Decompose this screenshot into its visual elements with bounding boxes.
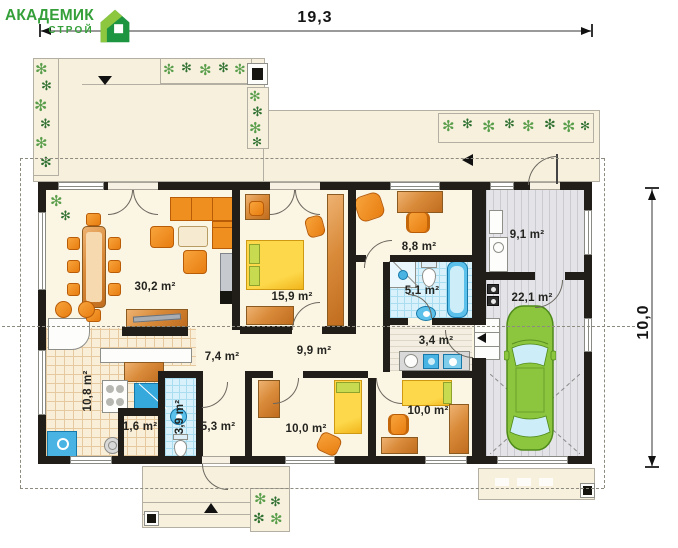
garage-door — [497, 456, 568, 464]
plant-icon: ✻ — [218, 62, 229, 75]
wall — [320, 182, 390, 190]
wall — [383, 262, 390, 372]
wardrobe — [449, 404, 469, 454]
wall — [584, 182, 592, 210]
plant-icon: ✻ — [181, 62, 192, 75]
wall — [303, 371, 368, 378]
room-label-garage: 22,1 m² — [511, 292, 552, 304]
dryer — [443, 354, 462, 369]
washing-machine — [47, 431, 77, 457]
wall — [348, 190, 356, 334]
dining-chair — [67, 283, 80, 296]
logo-text: АКАДЕМИК СТРОЙ — [5, 7, 94, 36]
dimension-tick — [645, 187, 659, 189]
room-label-hallway: 7,4 m² — [205, 351, 239, 363]
driveway-paver — [539, 478, 553, 486]
dining-chair — [67, 237, 80, 250]
step-arrow-icon — [477, 333, 486, 343]
plant-icon: ✻ — [40, 118, 51, 131]
roof-overhang-dashline — [20, 158, 604, 159]
wall — [245, 371, 273, 378]
wall — [158, 378, 165, 456]
wall — [584, 255, 592, 318]
floor-plan-canvas: АКАДЕМИК СТРОЙ 19,3 10,0 ✻ ✻ ✻ ✻ ✻ ✻ ✻ ✻… — [0, 0, 678, 548]
arrow-up-icon — [648, 190, 656, 200]
plant-icon: ✻ — [253, 512, 265, 526]
dining-table — [82, 226, 106, 308]
dining-chair — [86, 213, 101, 226]
dining-chair — [108, 237, 121, 250]
plant-icon: ✻ — [252, 106, 263, 119]
plant-icon: ✻ — [249, 90, 261, 104]
dining-chair — [108, 260, 121, 273]
electrical-panel — [487, 284, 499, 294]
wall — [584, 352, 592, 464]
logo-title: АКАДЕМИК — [5, 7, 94, 25]
plant-icon: ✻ — [462, 118, 473, 131]
office-chair — [388, 414, 409, 435]
wall — [38, 290, 46, 350]
porch-door-opening — [202, 456, 230, 464]
wall — [118, 408, 163, 416]
pillow — [249, 266, 260, 286]
section-dashline — [2, 326, 640, 327]
wall — [440, 182, 490, 190]
wall — [38, 456, 70, 464]
wall — [232, 190, 240, 330]
plant-icon: ✻ — [60, 210, 71, 223]
room-label-living-room: 30,2 m² — [134, 281, 175, 293]
plant-icon: ✻ — [580, 120, 590, 132]
pillow — [336, 382, 360, 393]
wall — [335, 456, 425, 464]
logo-house-icon — [97, 7, 133, 45]
pillow — [443, 382, 452, 404]
bar-counter — [48, 318, 90, 350]
boiler — [489, 237, 508, 272]
plant-icon: ✻ — [163, 63, 175, 77]
room-label-bedroom-right: 10,0 m² — [407, 405, 448, 417]
wall — [245, 378, 252, 456]
plant-icon: ✻ — [50, 194, 63, 209]
electrical-panel — [487, 296, 499, 306]
dining-chair — [108, 283, 121, 296]
plant-icon: ✻ — [270, 512, 283, 527]
office-chair — [406, 212, 430, 233]
armchair — [150, 226, 174, 248]
plant-icon: ✻ — [35, 62, 48, 77]
room-label-wc: 3,9 m² — [174, 400, 186, 434]
driveway-paver — [495, 478, 509, 486]
room-label-pantry: 1,6 m² — [123, 421, 157, 433]
plant-icon: ✻ — [504, 118, 515, 131]
coffee-table — [178, 226, 208, 247]
plant-icon: ✻ — [522, 119, 535, 134]
room-label-bathroom: 5,1 m² — [405, 285, 439, 297]
company-logo: АКАДЕМИК СТРОЙ — [5, 7, 133, 45]
wall — [565, 272, 584, 280]
dimension-height-label: 10,0 — [635, 304, 653, 339]
plant-icon: ✻ — [252, 136, 262, 148]
driveway-paver — [517, 478, 531, 486]
plant-icon: ✻ — [562, 119, 575, 135]
terrace-door-opening — [108, 182, 158, 190]
room-label-bedroom-left: 10,0 m² — [285, 423, 326, 435]
shower — [389, 261, 416, 288]
toilet-tank — [421, 261, 437, 268]
kitchen-counter — [100, 348, 192, 363]
laundry-sink — [404, 354, 418, 368]
wall — [230, 456, 285, 464]
wall-cabinet — [489, 210, 503, 234]
plant-icon: ✻ — [270, 496, 281, 509]
room-label-entry-hall: 5,3 m² — [201, 421, 235, 433]
desk — [381, 437, 418, 454]
roof-overhang-dashline — [20, 488, 604, 489]
wardrobe — [246, 306, 294, 325]
wall — [390, 318, 408, 325]
wall — [122, 327, 188, 336]
wall — [158, 371, 203, 378]
wall — [472, 190, 486, 325]
wall — [390, 255, 472, 262]
dimension-tick — [645, 466, 659, 468]
entry-arrow-icon — [204, 503, 218, 513]
room-label-corridor: 9,9 m² — [297, 345, 331, 357]
porch-step-line — [142, 502, 252, 503]
wall — [486, 272, 535, 280]
sideboard — [126, 309, 188, 327]
wall — [402, 371, 472, 378]
wall — [112, 456, 202, 464]
armchair — [183, 250, 207, 274]
logo-subtitle: СТРОЙ — [5, 25, 94, 36]
plant-icon: ✻ — [254, 492, 267, 507]
window — [70, 456, 112, 464]
plant-icon: ✻ — [249, 121, 262, 136]
window — [584, 318, 592, 352]
window — [38, 212, 46, 290]
plant-icon: ✻ — [482, 119, 495, 135]
arrow-right-icon — [581, 27, 591, 35]
window — [38, 350, 46, 415]
bar-stool — [55, 301, 72, 318]
dining-chair — [67, 260, 80, 273]
desk-chair — [249, 201, 264, 216]
arrow-down-icon — [648, 456, 656, 466]
wall — [158, 182, 270, 190]
room-label-bedroom-master: 15,9 m² — [271, 291, 312, 303]
plant-icon: ✻ — [41, 80, 52, 93]
room-label-mudroom: 3,4 m² — [419, 335, 453, 347]
window — [425, 456, 467, 464]
bathtub — [447, 261, 468, 318]
entry-arrow-icon — [98, 76, 112, 85]
room-label-kitchen: 10,8 m² — [82, 370, 94, 411]
dimension-width-label: 19,3 — [297, 9, 332, 27]
plant-icon: ✻ — [544, 118, 556, 132]
window — [58, 182, 104, 190]
wall — [240, 326, 292, 334]
porch-column-core — [147, 514, 156, 523]
window — [584, 210, 592, 255]
plant-icon: ✻ — [442, 119, 455, 134]
wall — [322, 326, 348, 334]
wall — [432, 318, 472, 325]
window — [390, 182, 440, 190]
entry-arrow-icon — [462, 154, 473, 166]
corner-sofa — [170, 197, 236, 221]
plant-icon: ✻ — [35, 136, 48, 151]
plant-icon: ✻ — [234, 63, 246, 77]
window — [490, 182, 514, 190]
wall — [38, 182, 46, 212]
bar-stool — [78, 301, 95, 318]
wall — [472, 358, 486, 456]
wardrobe — [327, 194, 344, 326]
dimension-tick — [591, 24, 593, 37]
terrace-door-opening — [270, 182, 320, 190]
plant-icon: ✻ — [34, 98, 47, 114]
wall — [568, 456, 592, 464]
room-label-study: 8,8 m² — [402, 241, 436, 253]
terrace-column-core — [252, 68, 263, 80]
washing-machine — [423, 354, 439, 369]
window — [285, 456, 335, 464]
roof-overhang-dashline — [604, 158, 605, 488]
pillow — [249, 244, 260, 264]
plant-icon: ✻ — [199, 63, 212, 78]
room-label-boiler-room: 9,1 m² — [510, 229, 544, 241]
wall — [368, 378, 376, 456]
roof-overhang-dashline — [20, 158, 21, 488]
wall — [467, 456, 497, 464]
desk — [397, 191, 443, 213]
